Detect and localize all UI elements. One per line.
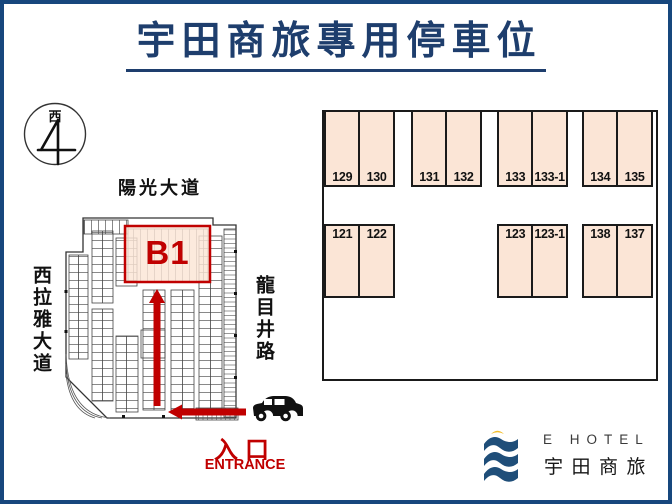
zone-label-b1: B1 bbox=[125, 224, 210, 282]
stall-number: 123-1 bbox=[534, 227, 564, 241]
parking-stall: 135 bbox=[616, 110, 653, 187]
stall-number: 132 bbox=[454, 170, 474, 184]
parking-lot-diagram: 129 130 131 132 133 133-1 134 135 121 12… bbox=[322, 110, 658, 381]
logo-name-zh: 宇田商旅 bbox=[544, 452, 654, 479]
parking-stall: 122 bbox=[358, 224, 395, 298]
logo-waves-icon bbox=[484, 431, 518, 482]
compass-direction-label: 西 bbox=[24, 106, 86, 125]
parking-stall: 132 bbox=[445, 110, 482, 187]
logo-crescent-icon bbox=[491, 431, 504, 434]
stall-group: 131 132 bbox=[411, 110, 482, 187]
stall-group: 123 123-1 bbox=[497, 224, 568, 298]
parking-stall: 131 bbox=[411, 110, 448, 187]
street-label-top: 陽光大道 bbox=[108, 174, 212, 200]
stall-number: 138 bbox=[590, 227, 610, 241]
parking-stall: 133 bbox=[497, 110, 534, 187]
parking-flyer: 宇田商旅專用停車位 西 陽光大道 西拉雅大道 龍目井路 B1 入口 ENTRAN… bbox=[0, 0, 672, 504]
stall-number: 121 bbox=[332, 227, 352, 241]
stall-group: 121 122 bbox=[324, 224, 395, 298]
stall-number: 137 bbox=[625, 227, 645, 241]
parking-stall: 133-1 bbox=[531, 110, 568, 187]
parking-stall: 134 bbox=[582, 110, 619, 187]
stall-number: 130 bbox=[367, 170, 387, 184]
stall-number: 123 bbox=[505, 227, 525, 241]
car-icon bbox=[253, 396, 303, 421]
street-label-left: 西拉雅大道 bbox=[27, 265, 54, 381]
parking-stall: 123 bbox=[497, 224, 534, 298]
parking-stall: 130 bbox=[358, 110, 395, 187]
stall-group: 133 133-1 bbox=[497, 110, 568, 187]
stall-group: 134 135 bbox=[582, 110, 653, 187]
stall-number: 133-1 bbox=[534, 170, 564, 184]
stall-number: 135 bbox=[625, 170, 645, 184]
parking-stall: 137 bbox=[616, 224, 653, 298]
stall-number: 133 bbox=[505, 170, 525, 184]
stall-number: 131 bbox=[419, 170, 439, 184]
parking-stall: 121 bbox=[324, 224, 361, 298]
stall-number: 134 bbox=[590, 170, 610, 184]
stall-group: 129 130 bbox=[324, 110, 395, 187]
page-title: 宇田商旅專用停車位 bbox=[126, 20, 545, 72]
stall-number: 122 bbox=[367, 227, 387, 241]
stall-group: 138 137 bbox=[582, 224, 653, 298]
parking-stall: 123-1 bbox=[531, 224, 568, 298]
stall-number: 129 bbox=[332, 170, 352, 184]
entrance-label-en: ENTRANCE bbox=[197, 457, 293, 473]
parking-stall: 138 bbox=[582, 224, 619, 298]
parking-stall: 129 bbox=[324, 110, 361, 187]
street-label-right: 龍目井路 bbox=[250, 275, 277, 367]
logo-name-en: E HOTEL bbox=[543, 432, 650, 447]
